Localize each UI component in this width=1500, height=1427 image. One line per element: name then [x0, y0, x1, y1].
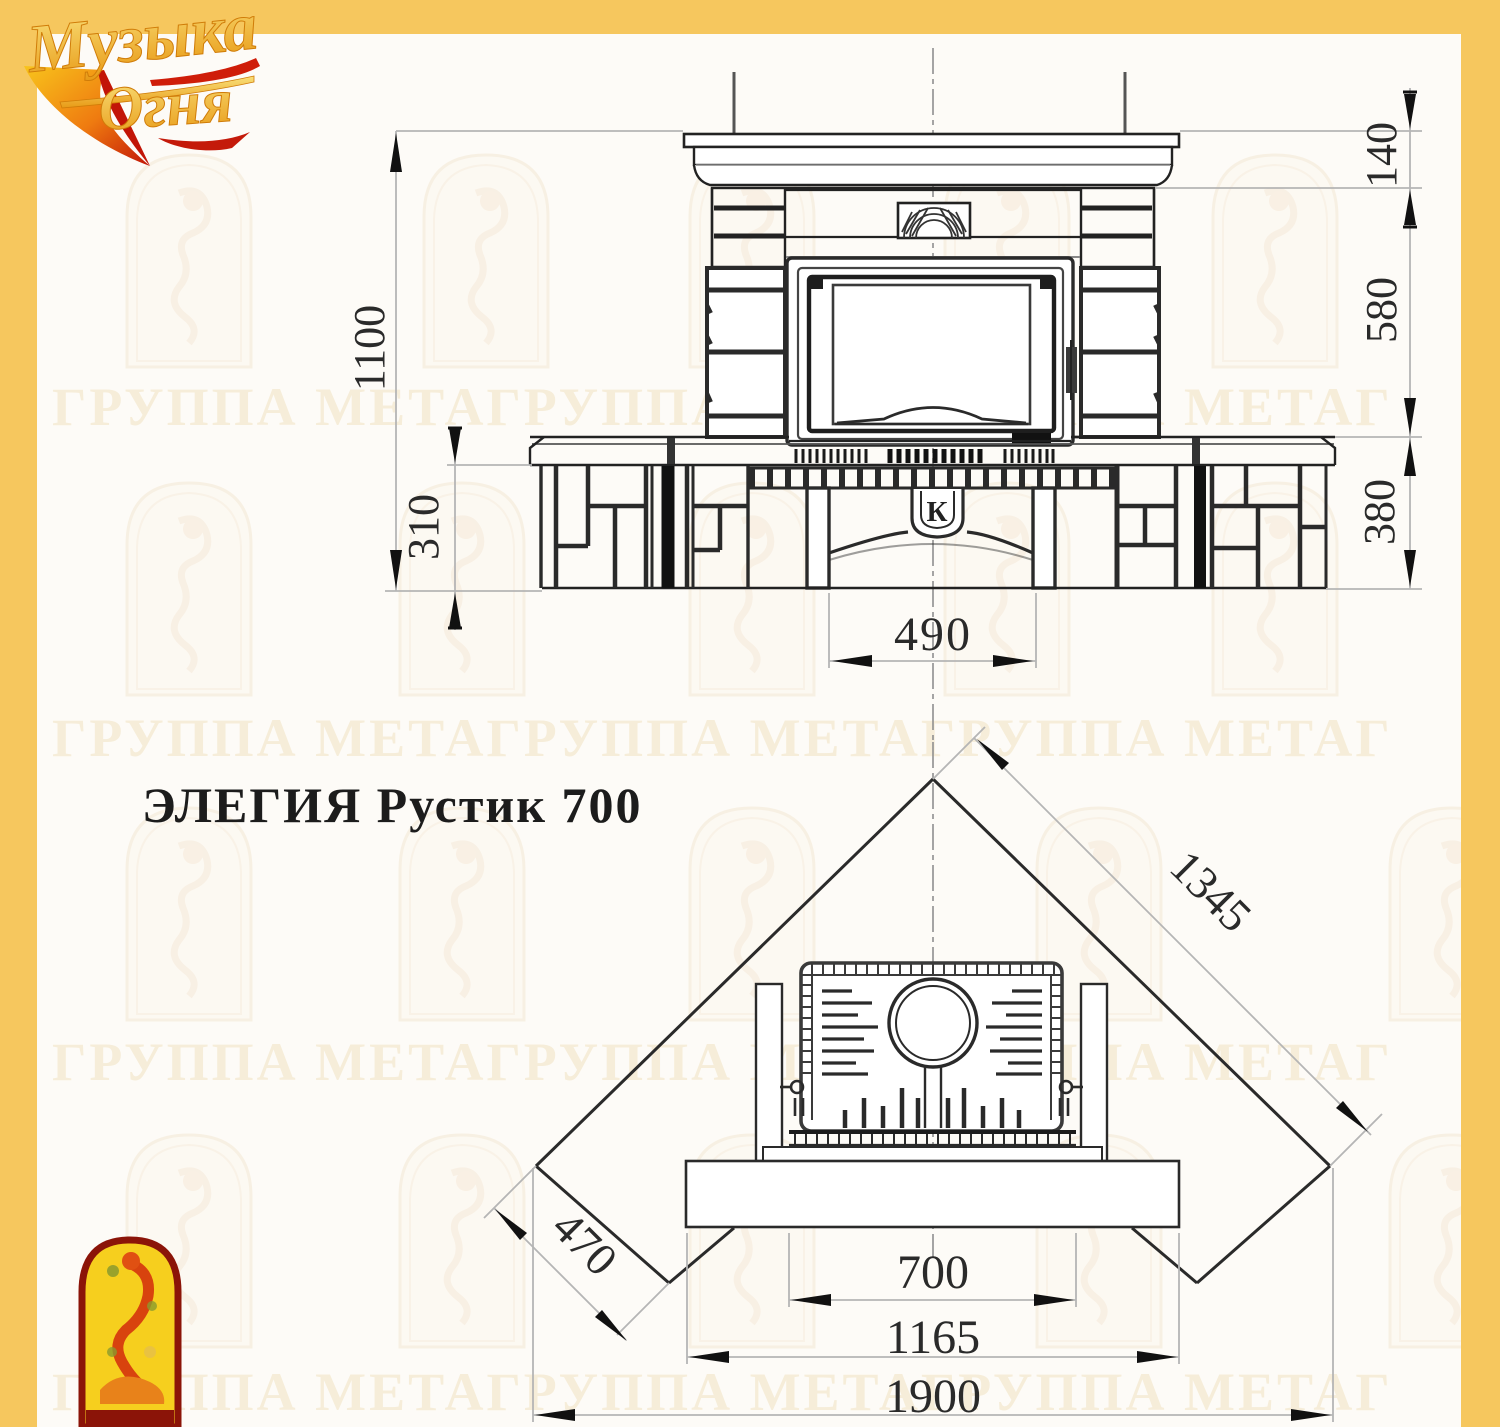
svg-text:380: 380 — [1355, 479, 1404, 545]
svg-text:Огня: Огня — [96, 67, 234, 144]
svg-text:700: 700 — [897, 1246, 969, 1299]
svg-text:ЭЛЕГИЯ Рустик 700: ЭЛЕГИЯ Рустик 700 — [142, 777, 643, 833]
svg-text:140: 140 — [1357, 122, 1406, 188]
svg-text:1165: 1165 — [886, 1311, 980, 1364]
svg-text:310: 310 — [399, 494, 448, 560]
svg-text:490: 490 — [894, 608, 972, 661]
svg-text:1100: 1100 — [345, 305, 394, 391]
svg-text:К: К — [926, 496, 947, 528]
svg-text:1900: 1900 — [885, 1370, 981, 1423]
svg-text:580: 580 — [1357, 277, 1406, 343]
